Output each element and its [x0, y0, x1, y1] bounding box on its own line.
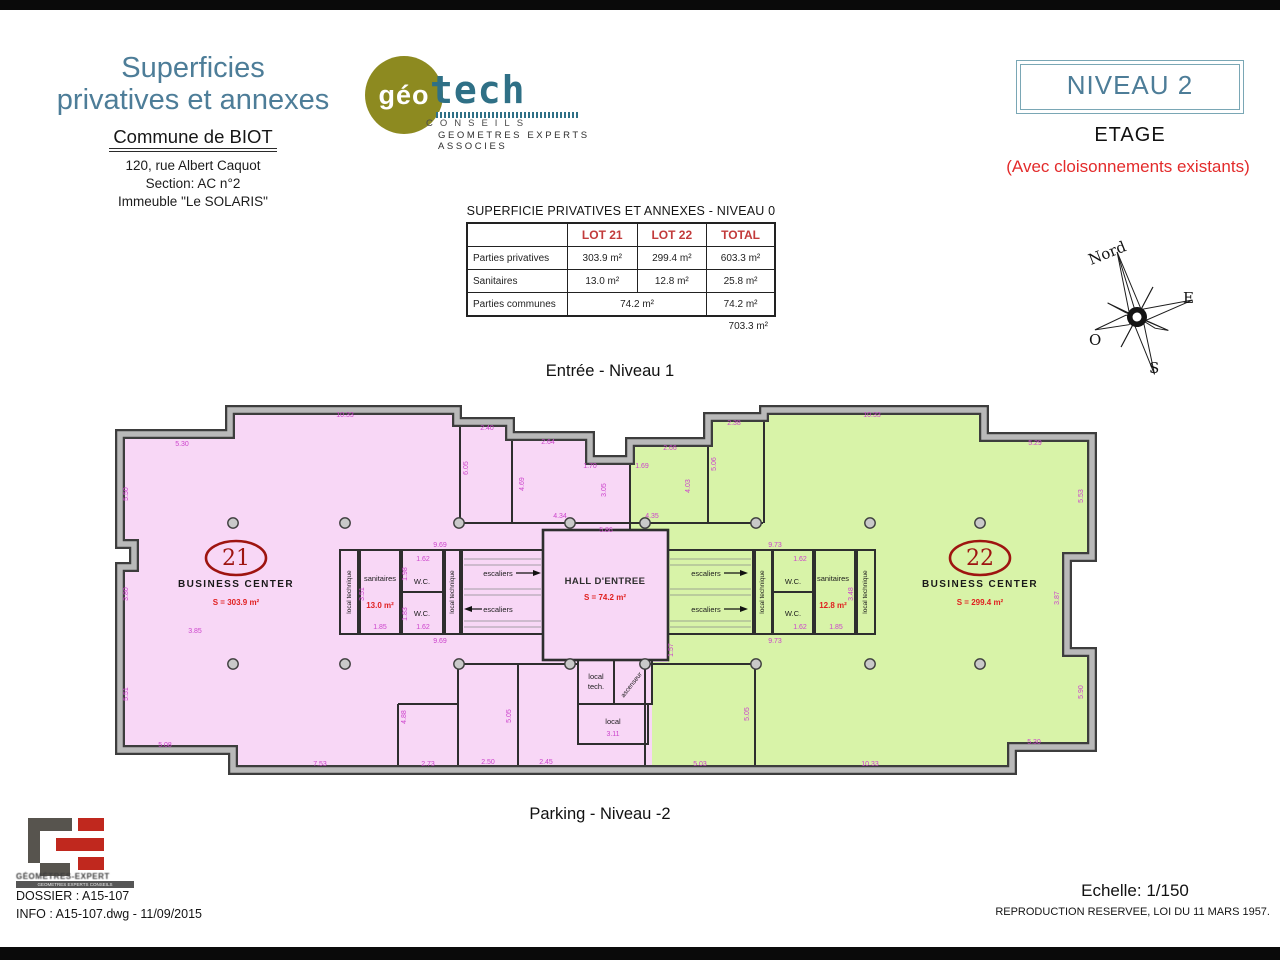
column-marker — [454, 518, 464, 528]
room-label: W.C. — [414, 609, 430, 618]
dimension-label: 9.69 — [433, 638, 447, 645]
compass-south-label: S — [1149, 359, 1159, 377]
room-label: 22 — [966, 546, 994, 571]
document-header: Superficies privatives et annexes Commun… — [38, 52, 348, 210]
dimension-label: 7.53 — [313, 761, 327, 768]
footer-company-logo — [26, 818, 111, 876]
cell: 12.8 m² — [637, 270, 707, 293]
dimension-label: 1.62 — [416, 556, 430, 563]
room-label: escaliers — [691, 605, 721, 614]
top-black-bar — [0, 0, 1280, 10]
dimension-label: 3.87 — [1054, 591, 1061, 605]
room-label: sanitaires — [817, 574, 849, 583]
page-title: Superficies privatives et annexes — [38, 52, 348, 117]
area-table-head-row: LOT 21LOT 22TOTAL — [467, 223, 775, 247]
room-label: 21 — [222, 546, 250, 571]
room-label: local technique — [346, 570, 353, 614]
level-title-box: NIVEAU 2 — [1016, 60, 1244, 114]
room-label: tech. — [588, 682, 604, 691]
room-label: HALL D'ENTREE — [565, 576, 646, 587]
dimension-label: 3.80 — [123, 587, 130, 601]
row-label: Parties communes — [467, 293, 568, 317]
cell: 299.4 m² — [637, 247, 707, 270]
scale-label: Echelle: 1/150 — [1000, 881, 1270, 901]
commune-heading: Commune de BIOT — [38, 126, 348, 148]
geotech-logo: géo tech CONSEILS GEOMETRES EXPERTS ASSO… — [360, 54, 660, 144]
dimension-label: 3.85 — [188, 628, 202, 635]
room-label: local technique — [449, 570, 456, 614]
column-marker — [975, 659, 985, 669]
column-marker — [228, 659, 238, 669]
dimension-label: 1.57 — [668, 643, 675, 657]
footer-logo-subtext: GEOMETRES EXPERTS CONSEILS — [16, 881, 134, 888]
dimension-label: 5.05 — [744, 707, 751, 721]
dimension-label: 3.48 — [848, 587, 855, 601]
dimension-label: 9.69 — [433, 542, 447, 549]
room-label: local — [588, 672, 604, 681]
lot22-area — [630, 410, 1092, 770]
dimension-label: 2.38 — [727, 420, 741, 427]
room-label: escaliers — [691, 569, 721, 578]
etage-label: ETAGE — [1016, 124, 1244, 147]
column-marker — [340, 518, 350, 528]
dimension-label: 10.33 — [861, 761, 879, 768]
dimension-label: 1.98 — [402, 567, 409, 581]
table-row: Sanitaires13.0 m²12.8 m²25.8 m² — [467, 270, 775, 293]
room-label: S = 299.4 m² — [957, 598, 1004, 607]
dimension-label: 5.06 — [711, 457, 718, 471]
dimension-label: 3.11 — [606, 731, 619, 738]
room-label: W.C. — [785, 609, 801, 618]
surface-table-title: SUPERFICIE PRIVATIVES ET ANNEXES - NIVEA… — [466, 204, 776, 218]
room-label: local technique — [862, 570, 869, 614]
dimension-label: 5.29 — [1028, 440, 1042, 447]
room-label: 12.8 m² — [819, 601, 847, 610]
room-label: BUSINESS CENTER — [922, 579, 1038, 590]
address-line-3: Immeuble "Le SOLARIS" — [38, 193, 348, 211]
dimension-label: 4.03 — [685, 479, 692, 493]
dimension-label: 9.73 — [768, 638, 782, 645]
compass-west-label: O — [1089, 331, 1101, 349]
column-marker — [640, 659, 650, 669]
cell: 303.9 m² — [568, 247, 638, 270]
dimension-label: 10.33 — [336, 412, 354, 419]
level-title: NIVEAU 2 — [1020, 64, 1240, 110]
dimension-label: 4.34 — [553, 513, 567, 520]
area-table-body: Parties privatives303.9 m²299.4 m²603.3 … — [467, 247, 775, 317]
footer-logo-text: GÉOMÈTRES-EXPERT — [16, 872, 136, 881]
column-marker — [751, 518, 761, 528]
compass-east-label: E — [1183, 289, 1194, 307]
dimension-label: 1.69 — [635, 463, 649, 470]
dimension-label: 5.90 — [1078, 685, 1085, 699]
cell: 603.3 m² — [707, 247, 775, 270]
dimension-label: 1.62 — [416, 624, 430, 631]
copyright-notice: REPRODUCTION RESERVEE, LOI DU 11 MARS 19… — [975, 906, 1270, 918]
bottom-black-bar — [0, 947, 1280, 960]
level-note: (Avec cloisonnements existants) — [976, 157, 1280, 177]
column-header: LOT 21 — [568, 223, 638, 247]
address-line-1: 120, rue Albert Caquot — [38, 157, 348, 175]
dimension-label: 3.05 — [601, 483, 608, 497]
dimension-label: 1.83 — [402, 607, 409, 621]
dimension-label: 5.03 — [693, 761, 707, 768]
dimension-label: 2.50 — [481, 759, 495, 766]
row-label: Sanitaires — [467, 270, 568, 293]
entry-level-label: Entrée - Niveau 1 — [450, 362, 770, 381]
dimension-label: 10.33 — [863, 412, 881, 419]
title-line-2: privatives et annexes — [38, 84, 348, 116]
table-row: Parties communes74.2 m²74.2 m² — [467, 293, 775, 317]
dimension-label: 2.64 — [541, 439, 555, 446]
dimension-label: 1.85 — [373, 624, 387, 631]
dimension-label: 9.73 — [768, 542, 782, 549]
room-label: local — [605, 717, 621, 726]
dimension-label: 2.45 — [539, 759, 553, 766]
address-block: 120, rue Albert Caquot Section: AC n°2 I… — [38, 157, 348, 210]
column-header: LOT 22 — [637, 223, 707, 247]
dimension-label: 5.30 — [175, 441, 189, 448]
dimension-label: 6.05 — [463, 461, 470, 475]
dimension-label: 5.53 — [1078, 489, 1085, 503]
dimension-label: 4.35 — [645, 513, 659, 520]
parking-level-label: Parking - Niveau -2 — [440, 805, 760, 824]
column-marker — [565, 659, 575, 669]
logo-subtitle: GEOMETRES EXPERTS ASSOCIES — [438, 130, 660, 152]
room-label: S = 303.9 m² — [213, 598, 260, 607]
cell-merged: 74.2 m² — [568, 293, 707, 317]
dimension-label: 1.62 — [793, 556, 807, 563]
dimension-label: 1.62 — [793, 624, 807, 631]
dimension-label: 2.40 — [480, 425, 494, 432]
dimension-label: 5.50 — [123, 487, 130, 501]
cell: 74.2 m² — [707, 293, 775, 317]
table-row: Parties privatives303.9 m²299.4 m²603.3 … — [467, 247, 775, 270]
dimension-label: 4.88 — [401, 710, 408, 724]
row-label: Parties privatives — [467, 247, 568, 270]
dimension-label: 3.51 — [359, 587, 366, 601]
dimension-label: 1.70 — [583, 463, 597, 470]
room-label: BUSINESS CENTER — [178, 579, 294, 590]
column-header — [467, 223, 568, 247]
dimension-label: 1.85 — [829, 624, 843, 631]
compass-rose: Nord E S O — [1083, 237, 1198, 379]
dimension-label: 2.73 — [421, 761, 435, 768]
room-label: escaliers — [483, 605, 513, 614]
column-marker — [340, 659, 350, 669]
dimension-label: 5.08 — [158, 742, 172, 749]
dossier-reference: DOSSIER : A15-107 — [16, 889, 129, 903]
room-label: local technique — [759, 570, 766, 614]
dimension-label: 5.86 — [599, 527, 613, 534]
floor-plan: 5.3010.332.402.641.701.692.662.3810.335.… — [112, 402, 1102, 780]
dimension-label: 5.51 — [123, 687, 130, 701]
column-marker — [865, 659, 875, 669]
room-label: W.C. — [414, 577, 430, 586]
column-marker — [865, 518, 875, 528]
title-line-1: Superficies — [38, 52, 348, 84]
logo-tech-text: tech — [430, 68, 526, 112]
room-label: W.C. — [785, 577, 801, 586]
dimension-label: 2.66 — [663, 445, 677, 452]
column-header: TOTAL — [707, 223, 775, 247]
logo-conseils-text: CONSEILS — [426, 118, 530, 129]
file-info: INFO : A15-107.dwg - 11/09/2015 — [16, 907, 202, 921]
cell: 13.0 m² — [568, 270, 638, 293]
room-label: escaliers — [483, 569, 513, 578]
column-marker — [228, 518, 238, 528]
dimension-label: 4.69 — [519, 477, 526, 491]
column-marker — [751, 659, 761, 669]
column-marker — [454, 659, 464, 669]
grand-total: 703.3 m² — [466, 321, 776, 332]
surface-table: LOT 21LOT 22TOTAL Parties privatives303.… — [466, 222, 776, 317]
dimension-label: 5.30 — [1027, 739, 1041, 746]
column-marker — [975, 518, 985, 528]
surface-table-block: SUPERFICIE PRIVATIVES ET ANNEXES - NIVEA… — [466, 204, 776, 332]
cell: 25.8 m² — [707, 270, 775, 293]
address-line-2: Section: AC n°2 — [38, 175, 348, 193]
room-label: 13.0 m² — [366, 601, 394, 610]
room-label: sanitaires — [364, 574, 396, 583]
room-label: S = 74.2 m² — [584, 593, 626, 602]
dimension-label: 5.05 — [506, 709, 513, 723]
